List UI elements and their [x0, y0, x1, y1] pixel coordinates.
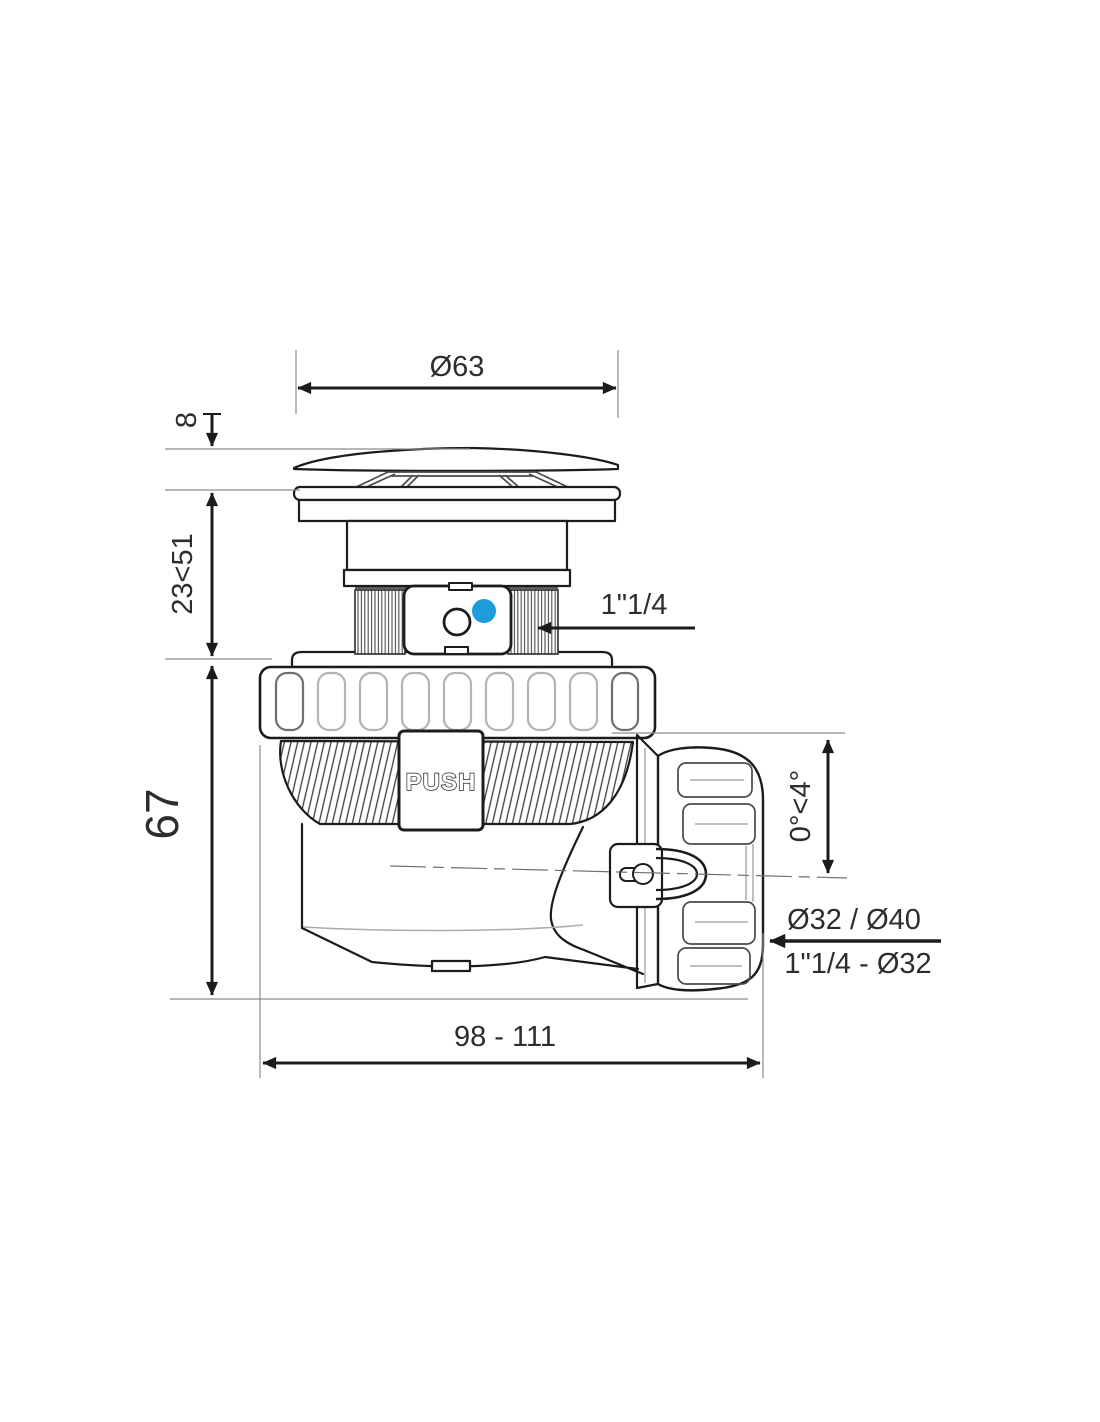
cap-flange-band — [299, 500, 615, 521]
dimension-label: 1"1/4 — [601, 589, 668, 621]
outlet-nut — [658, 747, 763, 990]
technical-drawing-canvas: PUSH — [0, 0, 1100, 1422]
dimension-label: 67 — [136, 788, 188, 839]
clip-hole — [444, 609, 470, 635]
pop-up-cap — [294, 448, 620, 586]
dimension-cap-height: 8 — [165, 412, 470, 449]
push-label: PUSH — [406, 769, 477, 796]
drain-trap-technical-drawing: PUSH — [0, 0, 1100, 1422]
dimension-label: 8 — [171, 412, 203, 428]
blue-indicator-dot — [472, 599, 496, 623]
cap-dome — [294, 448, 618, 471]
dimension-inlet-thread: 1"1/4 — [538, 589, 695, 628]
thread-left — [355, 590, 405, 654]
clip-bottom-notch — [445, 647, 468, 654]
bowl-rim-line — [303, 925, 583, 931]
dimension-label: 98 - 111 — [454, 1021, 556, 1053]
outlet-reduction-label: 1"1/4 - Ø32 — [784, 948, 931, 980]
dimension-label: 0°<4° — [785, 770, 817, 842]
bowl-outline — [302, 824, 643, 974]
lock-nut — [260, 652, 655, 738]
dimension-label: Ø63 — [430, 351, 485, 383]
keyhole-circle — [633, 864, 653, 884]
trap-body: PUSH — [280, 731, 643, 974]
outlet-diameters-label: Ø32 / Ø40 — [787, 904, 921, 936]
cap-flange-rim — [294, 487, 620, 500]
outlet-assembly — [610, 735, 763, 990]
bowl-bottom-tab — [432, 961, 470, 971]
dimension-outlet-size: Ø32 / Ø40 1"1/4 - Ø32 — [770, 904, 941, 980]
dimension-cap-diameter: Ø63 — [296, 350, 618, 418]
cap-neck — [347, 521, 567, 570]
clip-top-notch — [449, 583, 472, 590]
dimension-label: 23<51 — [167, 533, 199, 614]
inlet-thread — [355, 583, 558, 654]
dimension-adjustable-height: 23<51 — [165, 490, 300, 659]
bowl — [302, 824, 643, 974]
thread-right — [508, 590, 558, 654]
